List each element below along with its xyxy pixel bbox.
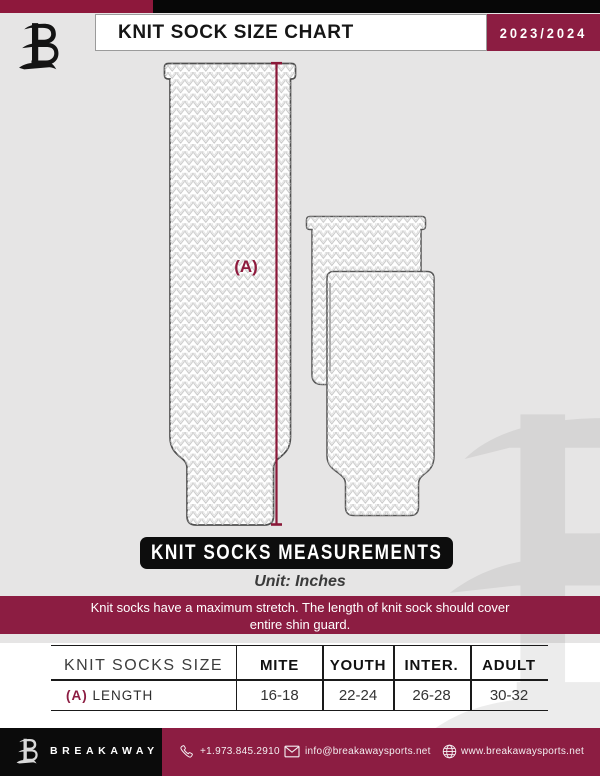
svg-text:(A): (A)	[234, 257, 258, 276]
